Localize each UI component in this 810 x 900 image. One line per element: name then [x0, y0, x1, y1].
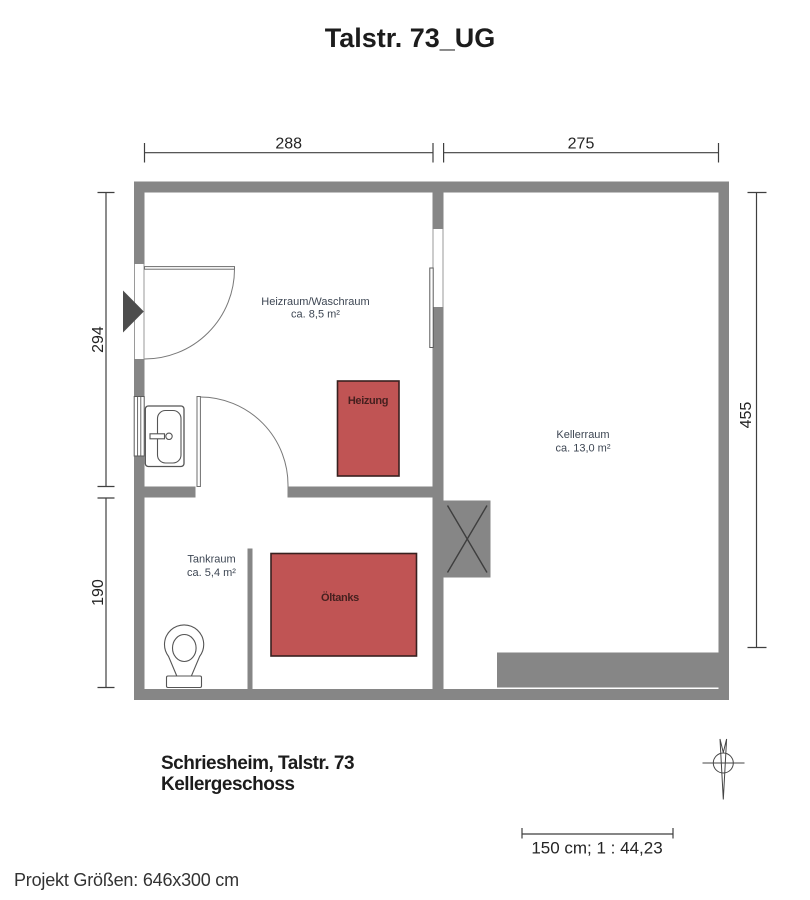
svg-text:Öltanks: Öltanks: [321, 591, 359, 604]
svg-text:ca. 13,0 m²: ca. 13,0 m²: [555, 443, 610, 455]
svg-text:ca. 8,5 m²: ca. 8,5 m²: [291, 309, 340, 321]
svg-text:Schriesheim, Talstr. 73: Schriesheim, Talstr. 73: [161, 753, 354, 774]
svg-text:Tankraum: Tankraum: [187, 554, 235, 566]
svg-text:275: 275: [568, 136, 595, 153]
svg-text:288: 288: [275, 136, 302, 153]
svg-text:455: 455: [738, 402, 755, 429]
svg-text:Heizraum/Waschraum: Heizraum/Waschraum: [261, 296, 369, 308]
svg-text:ca. 5,4 m²: ca. 5,4 m²: [187, 567, 236, 579]
svg-text:Projekt Größen: 646x300 cm: Projekt Größen: 646x300 cm: [14, 870, 239, 890]
svg-text:Talstr. 73_UG: Talstr. 73_UG: [325, 23, 496, 53]
svg-text:150 cm; 1 : 44,23: 150 cm; 1 : 44,23: [531, 839, 662, 858]
svg-text:Kellerraum: Kellerraum: [556, 429, 609, 441]
svg-text:294: 294: [90, 326, 107, 353]
svg-text:Heizung: Heizung: [348, 395, 388, 407]
svg-text:190: 190: [90, 579, 107, 606]
svg-text:Kellergeschoss: Kellergeschoss: [161, 774, 294, 795]
